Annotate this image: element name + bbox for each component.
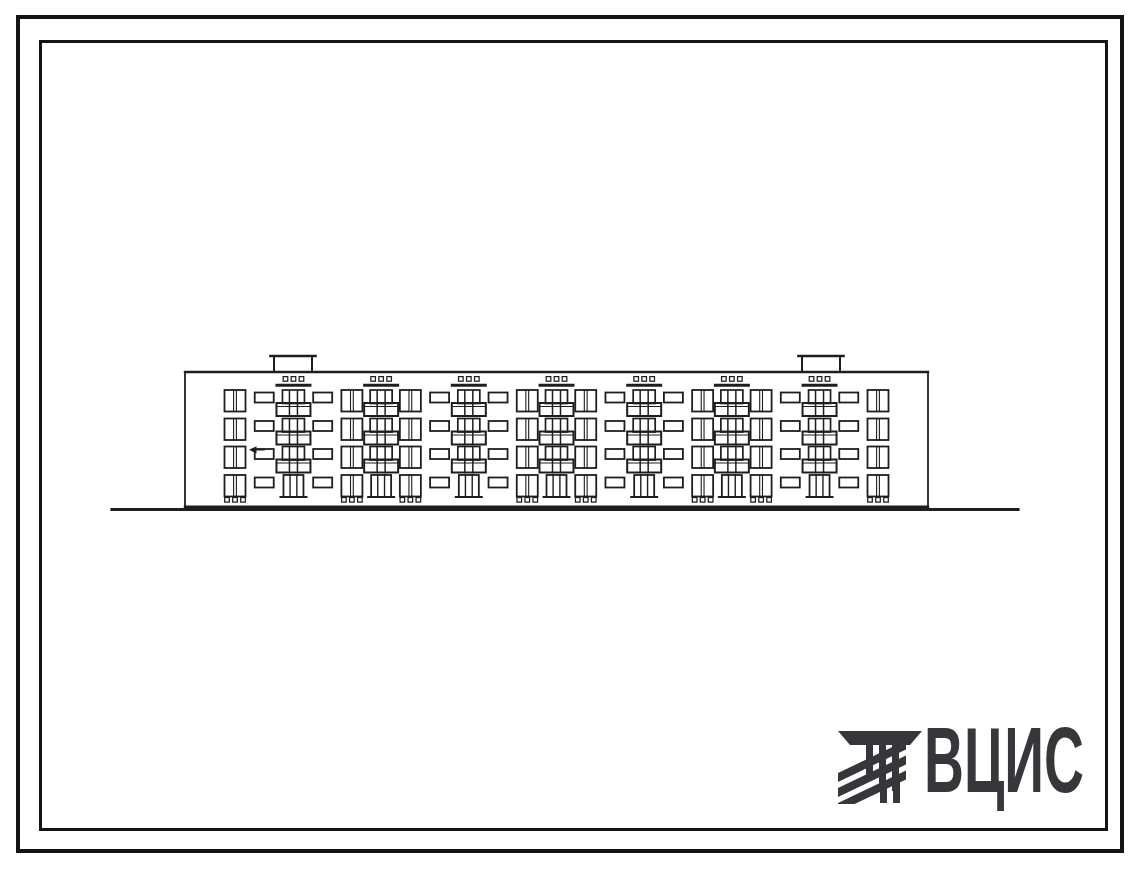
- attic-vents: [459, 377, 480, 382]
- balcony-column: [364, 377, 398, 497]
- basement-vents: [868, 498, 889, 503]
- balcony-column: [627, 377, 661, 497]
- balcony: [364, 447, 398, 473]
- attic-vents: [546, 377, 567, 382]
- balcony: [627, 419, 661, 445]
- small-window-column: [313, 393, 332, 488]
- basement-vents: [517, 498, 538, 503]
- attic-vents: [722, 377, 743, 382]
- small-window-column: [605, 393, 624, 488]
- window-column: [400, 390, 421, 502]
- vcis-logo: ВЦИС: [836, 720, 1094, 804]
- balcony: [715, 419, 749, 445]
- basement-vents: [575, 498, 596, 503]
- balcony: [540, 447, 574, 473]
- balcony: [715, 447, 749, 473]
- window-column: [517, 390, 538, 502]
- balcony: [276, 447, 310, 473]
- balcony-column: [276, 377, 310, 497]
- balcony: [540, 390, 574, 416]
- vcis-logo-icon: [836, 726, 924, 804]
- small-window-column: [664, 393, 683, 488]
- balcony: [276, 390, 310, 416]
- balcony-column: [803, 377, 837, 497]
- window-column: [751, 390, 772, 502]
- window-column: [868, 390, 889, 502]
- balcony-door-window: [368, 475, 394, 497]
- small-window-column: [489, 393, 508, 488]
- small-window-column: [255, 393, 274, 488]
- balcony: [276, 419, 310, 445]
- balcony: [627, 390, 661, 416]
- basement-vents: [225, 498, 246, 503]
- balcony-door-window: [280, 475, 306, 497]
- window-column: [225, 390, 246, 502]
- balcony: [452, 447, 486, 473]
- balcony: [452, 419, 486, 445]
- balcony-column: [715, 377, 749, 497]
- small-window-column: [430, 393, 449, 488]
- balcony-door-window: [456, 475, 482, 497]
- balcony: [540, 419, 574, 445]
- basement-vents: [400, 498, 421, 503]
- balcony: [803, 390, 837, 416]
- window-column: [575, 390, 596, 502]
- small-window-column: [781, 393, 800, 488]
- basement-vents: [342, 498, 363, 503]
- roof-chimney: [271, 356, 316, 372]
- roof-chimney: [799, 356, 844, 372]
- attic-vents: [371, 377, 392, 382]
- level-mark-arrow: [249, 446, 264, 453]
- balcony: [364, 419, 398, 445]
- vcis-logo-text-wrap: ВЦИС: [922, 720, 1094, 802]
- balcony-door-window: [544, 475, 570, 497]
- balcony-door-window: [719, 475, 745, 497]
- window-column: [341, 390, 362, 502]
- small-window-column: [839, 393, 858, 488]
- balcony: [452, 390, 486, 416]
- attic-vents: [809, 377, 830, 382]
- balcony: [803, 419, 837, 445]
- attic-vents: [283, 377, 304, 382]
- balcony-door-window: [631, 475, 657, 497]
- balcony-column: [540, 377, 574, 497]
- window-column: [692, 390, 713, 502]
- balcony-door-window: [807, 475, 833, 497]
- balcony: [715, 390, 749, 416]
- attic-vents: [634, 377, 655, 382]
- balcony: [627, 447, 661, 473]
- basement-vents: [692, 498, 713, 503]
- balcony: [364, 390, 398, 416]
- vcis-logo-text: ВЦИС: [924, 709, 1084, 811]
- balcony: [803, 447, 837, 473]
- basement-vents: [751, 498, 772, 503]
- balcony-column: [452, 377, 486, 497]
